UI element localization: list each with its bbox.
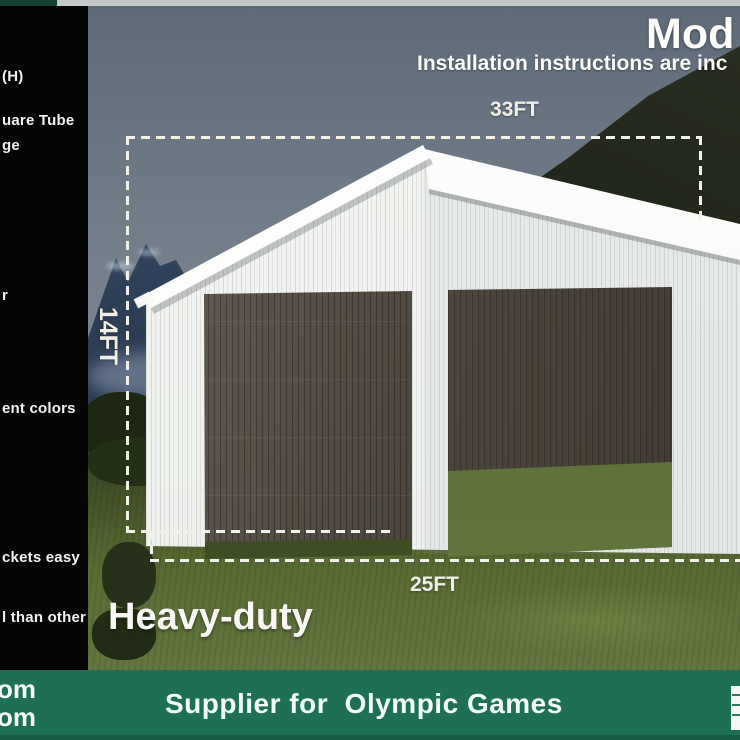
height-dimension-line: [126, 136, 129, 532]
banner-title: Supplier for Olympic Games: [165, 688, 563, 720]
garage-photo: 33FT 14FT 25FT Mod Installation instruct…: [88, 6, 740, 670]
feature-sidebar: (H) uare Tube ge r ent colors ckets easy…: [0, 6, 88, 670]
instructions-heading: Installation instructions are inc: [417, 52, 727, 76]
product-ad-image: (H) uare Tube ge r ent colors ckets easy…: [0, 0, 740, 740]
width-dimension-line-end: [699, 136, 702, 220]
height-dimension-label: 14FT: [94, 296, 122, 376]
partial-logo: [731, 686, 740, 730]
snow-patch: [138, 249, 160, 256]
heavy-duty-caption: Heavy-duty: [108, 596, 313, 639]
banner-bottom-edge: [0, 735, 740, 740]
sidebar-text-fragment: uare Tube: [2, 112, 74, 129]
width-dimension-label: 33FT: [490, 98, 539, 122]
depth-dimension-line-upper: [126, 530, 390, 533]
width-dimension-line: [126, 136, 700, 139]
sidebar-text-fragment: ge: [2, 137, 20, 154]
snow-patch: [106, 262, 134, 270]
sidebar-text-fragment: (H): [2, 68, 23, 85]
sidebar-text-fragment: l than other: [2, 609, 86, 626]
cut-url-fragment: om: [0, 676, 36, 702]
supplier-banner: om om Supplier for Olympic Games: [0, 670, 740, 740]
dimension-line-connector: [150, 530, 153, 561]
depth-dimension-line: [150, 559, 740, 562]
sidebar-text-fragment: r: [2, 287, 8, 304]
sidebar-text-fragment: ckets easy: [2, 549, 80, 566]
grass-highlight: [448, 586, 740, 656]
depth-dimension-label: 25FT: [410, 573, 459, 597]
sidebar-text-fragment: ent colors: [2, 400, 76, 417]
cut-url-fragment: om: [0, 704, 36, 730]
